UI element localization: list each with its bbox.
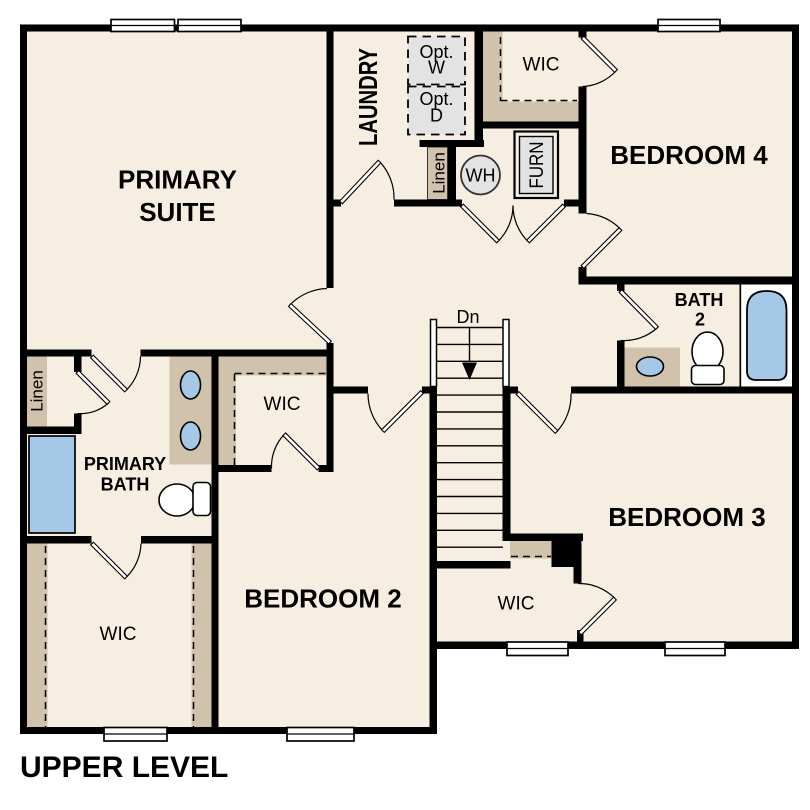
svg-text:FURN: FURN [527, 142, 548, 189]
svg-text:D: D [430, 106, 443, 126]
svg-text:BEDROOM 2: BEDROOM 2 [244, 584, 401, 614]
svg-text:WIC: WIC [264, 394, 301, 415]
svg-text:Dn: Dn [456, 307, 479, 327]
svg-text:2: 2 [695, 310, 705, 330]
svg-text:WH: WH [466, 166, 496, 186]
svg-text:BATH: BATH [675, 290, 724, 310]
svg-text:LAUNDRY: LAUNDRY [353, 48, 383, 146]
svg-text:W: W [428, 58, 445, 78]
svg-text:PRIMARY: PRIMARY [118, 165, 237, 195]
svg-text:Linen: Linen [430, 152, 449, 194]
svg-text:WIC: WIC [523, 55, 560, 76]
svg-text:UPPER LEVEL: UPPER LEVEL [20, 751, 228, 784]
svg-text:PRIMARY: PRIMARY [84, 454, 166, 474]
svg-text:Linen: Linen [28, 370, 47, 412]
svg-text:WIC: WIC [100, 624, 137, 645]
svg-text:SUITE: SUITE [139, 197, 216, 227]
svg-text:BATH: BATH [101, 475, 150, 495]
svg-text:BEDROOM 3: BEDROOM 3 [608, 502, 765, 532]
svg-text:WIC: WIC [498, 594, 535, 615]
svg-text:BEDROOM 4: BEDROOM 4 [610, 140, 768, 170]
